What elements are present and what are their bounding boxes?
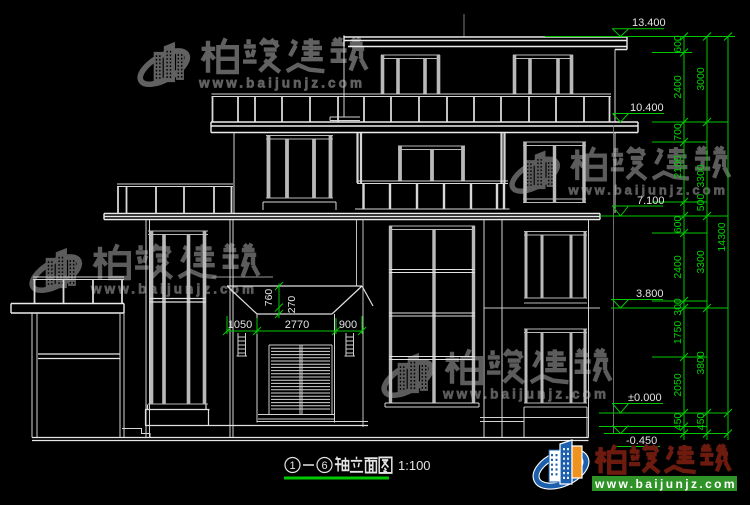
svg-text:270: 270 xyxy=(286,296,298,314)
svg-text:www.baijunjz.com: www.baijunjz.com xyxy=(594,477,737,491)
svg-text:3.800: 3.800 xyxy=(636,288,664,300)
svg-text:700: 700 xyxy=(672,123,684,141)
svg-text:3300: 3300 xyxy=(695,164,707,188)
svg-text:10.400: 10.400 xyxy=(630,102,664,114)
svg-text:900: 900 xyxy=(339,319,357,331)
svg-text:500: 500 xyxy=(695,194,707,212)
svg-text:450: 450 xyxy=(695,413,707,431)
svg-text:14300: 14300 xyxy=(716,222,728,251)
svg-text:2400: 2400 xyxy=(672,75,684,99)
svg-text:1:100: 1:100 xyxy=(398,458,431,473)
svg-text:2050: 2050 xyxy=(672,373,684,397)
svg-text:±0.000: ±0.000 xyxy=(628,392,662,404)
svg-text:6: 6 xyxy=(321,460,327,472)
svg-text:450: 450 xyxy=(672,413,684,431)
svg-text:2400: 2400 xyxy=(672,255,684,279)
svg-text:7.100: 7.100 xyxy=(637,195,665,207)
svg-text:1: 1 xyxy=(289,460,295,472)
svg-text:3000: 3000 xyxy=(695,67,707,91)
svg-text:1750: 1750 xyxy=(672,321,684,345)
svg-text:300: 300 xyxy=(672,298,684,316)
svg-text:13.400: 13.400 xyxy=(632,17,666,29)
svg-text:1050: 1050 xyxy=(228,319,252,331)
svg-text:2100: 2100 xyxy=(672,155,684,179)
svg-text:600: 600 xyxy=(672,216,684,234)
svg-text:-0.450: -0.450 xyxy=(626,435,657,447)
svg-text:600: 600 xyxy=(672,35,684,53)
svg-text:2770: 2770 xyxy=(285,319,309,331)
svg-text:760: 760 xyxy=(263,289,275,307)
svg-text:3800: 3800 xyxy=(695,351,707,375)
svg-text:3300: 3300 xyxy=(695,250,707,274)
